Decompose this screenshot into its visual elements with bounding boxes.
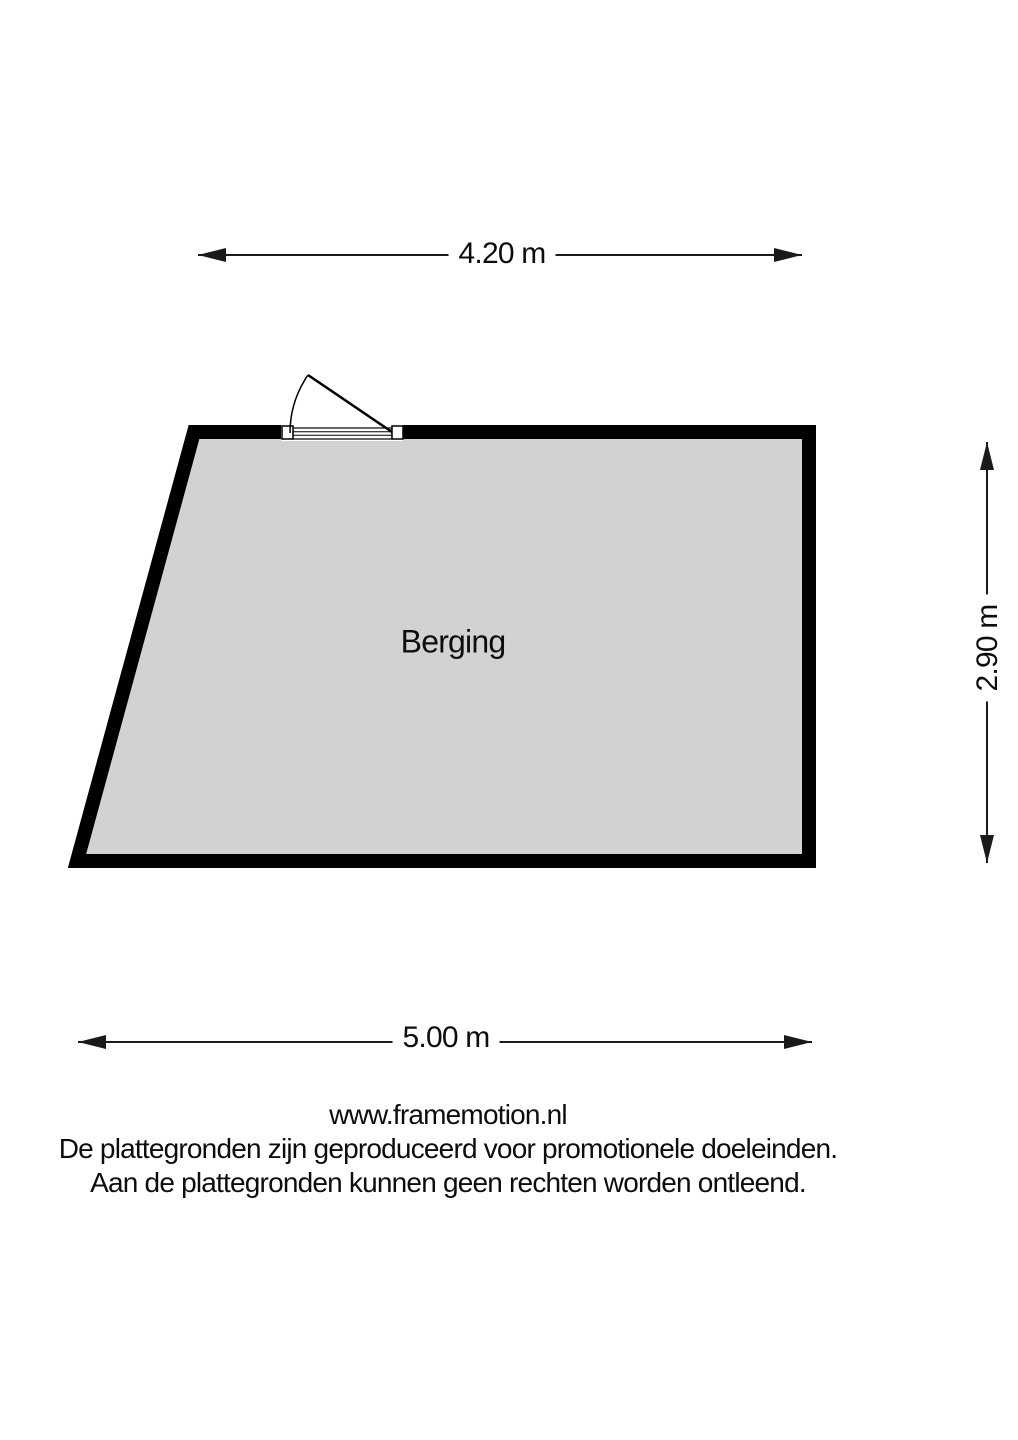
door-left-jamb	[282, 426, 293, 439]
dimension-label-top: 4.20 m	[449, 237, 556, 271]
room-label: Berging	[401, 624, 506, 661]
arrowhead-left-icon	[78, 1035, 106, 1049]
footer-disclaimer-line2: Aan de plattegronden kunnen geen rechten…	[0, 1166, 896, 1200]
footer-website: www.framemotion.nl	[0, 1098, 896, 1132]
door-leaf	[308, 375, 392, 432]
floor-plan-svg	[0, 0, 1018, 1440]
arrowhead-down-icon	[980, 835, 994, 863]
arrowhead-right-icon	[774, 248, 802, 262]
floor-plan-page: 4.20 m 2.90 m 5.00 m Berging www.framemo…	[0, 0, 1018, 1440]
door-right-jamb	[392, 426, 403, 439]
dimension-label-right: 2.90 m	[971, 595, 1005, 702]
dimension-label-bottom: 5.00 m	[393, 1021, 500, 1055]
arrowhead-left-icon	[198, 248, 226, 262]
arrowhead-up-icon	[980, 442, 994, 470]
door-threshold	[293, 428, 392, 439]
footer-disclaimer-line1: De plattegronden zijn geproduceerd voor …	[0, 1132, 896, 1166]
arrowhead-right-icon	[784, 1035, 812, 1049]
footer: www.framemotion.nl De plattegronden zijn…	[0, 1098, 896, 1200]
